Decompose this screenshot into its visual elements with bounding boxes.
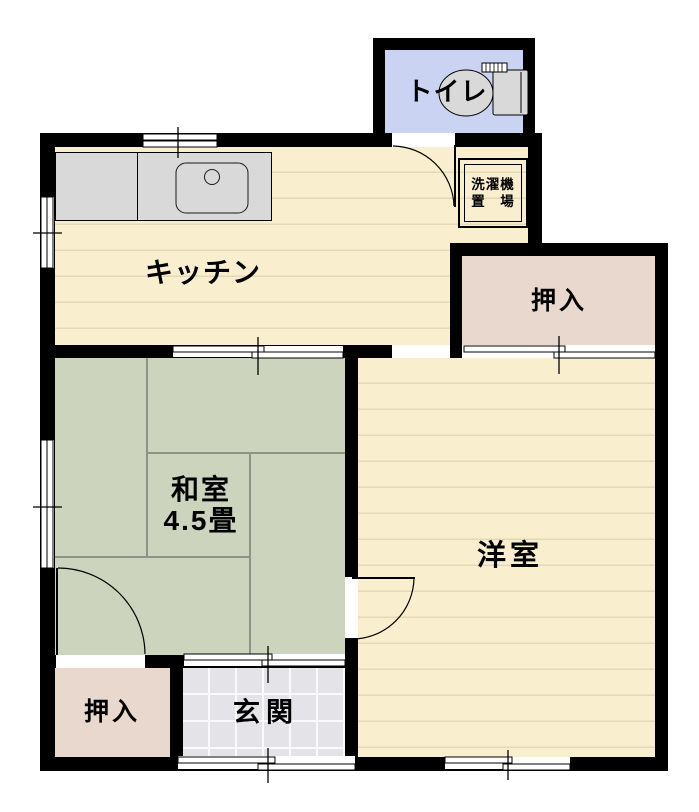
wall bbox=[373, 38, 535, 50]
tatami-seam bbox=[147, 452, 345, 454]
wall bbox=[373, 38, 385, 145]
wall bbox=[40, 655, 358, 668]
japanese-room-name: 和室 bbox=[164, 474, 239, 505]
wall bbox=[170, 655, 183, 770]
room-label-laundry: 洗濯機 置 場 bbox=[471, 176, 515, 210]
room-label-entrance: 玄関 bbox=[233, 691, 299, 730]
tatami-seam bbox=[146, 358, 148, 557]
japanese-room-size: 4.5畳 bbox=[164, 505, 239, 536]
wall bbox=[40, 345, 392, 358]
laundry-label-line1: 洗濯機 bbox=[471, 176, 515, 193]
wall bbox=[523, 38, 535, 145]
wall bbox=[528, 133, 542, 256]
wall bbox=[40, 133, 542, 147]
room-label-closet-lower: 押入 bbox=[84, 692, 140, 728]
tatami-seam bbox=[249, 452, 251, 655]
kitchen-counter bbox=[55, 152, 272, 221]
laundry-label-line2: 置 場 bbox=[471, 193, 515, 210]
room-label-western: 洋室 bbox=[477, 532, 543, 574]
room-label-kitchen: キッチン bbox=[145, 251, 261, 291]
wall bbox=[345, 345, 358, 770]
room-label-toilet: トイレ bbox=[406, 72, 487, 109]
room-label-closet-upper: 押入 bbox=[531, 281, 587, 317]
wall bbox=[655, 243, 668, 771]
room-label-japanese: 和室 4.5畳 bbox=[164, 474, 239, 536]
floorplan: トイレ 洗濯機 置 場 キッチン 押入 和室 4.5畳 洋室 押入 玄関 bbox=[0, 0, 699, 812]
wall bbox=[450, 243, 462, 358]
wall bbox=[40, 133, 55, 771]
tatami-seam bbox=[55, 556, 250, 558]
kitchen-counter-divider bbox=[137, 152, 138, 221]
wall bbox=[450, 243, 668, 256]
